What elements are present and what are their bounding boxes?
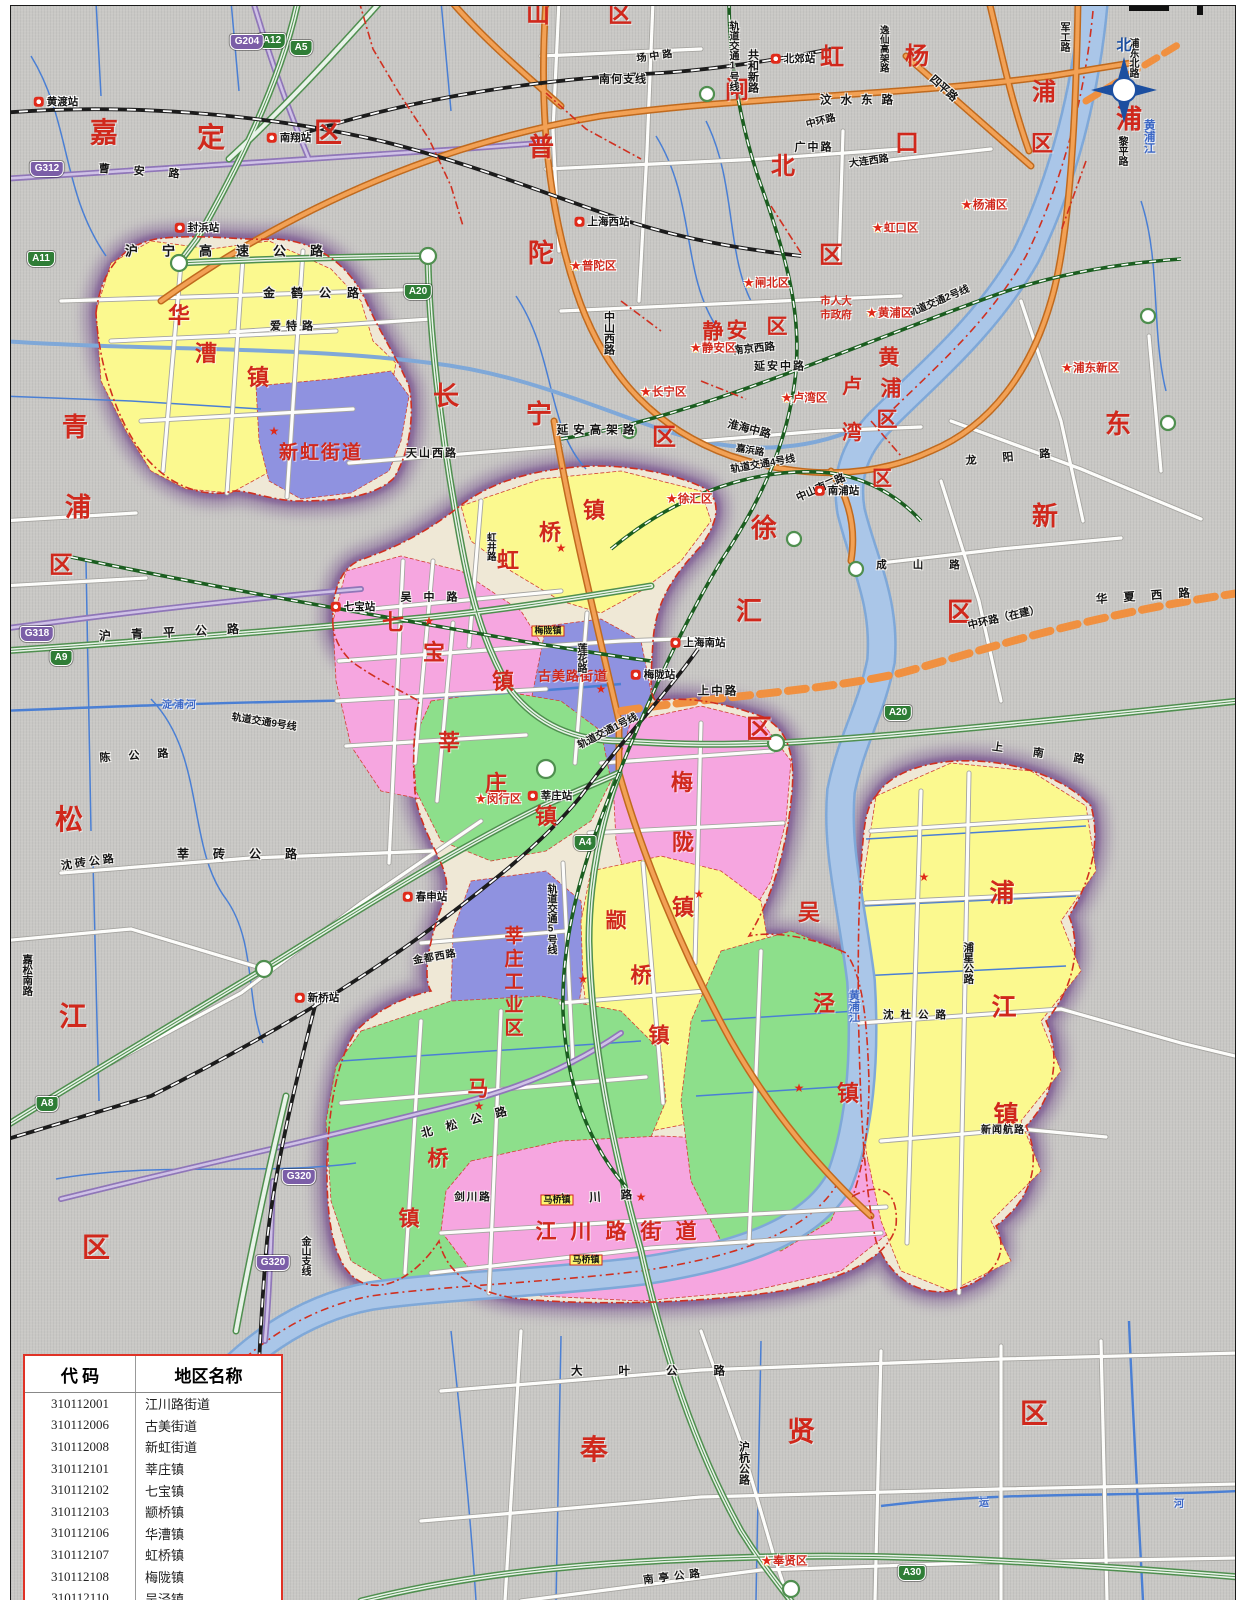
legend-code: 310112006 — [24, 1415, 136, 1437]
legend-row: 310112110吴泾镇 — [24, 1587, 282, 1600]
legend-row: 310112001江川路街道 — [24, 1393, 282, 1415]
legend-code: 310112102 — [24, 1479, 136, 1501]
legend-name: 华漕镇 — [136, 1523, 283, 1545]
legend-code: 310112101 — [24, 1458, 136, 1480]
legend-code: 310112106 — [24, 1523, 136, 1545]
legend-row: 310112108梅陇镇 — [24, 1566, 282, 1588]
legend-name: 江川路街道 — [136, 1393, 283, 1415]
legend-row: 310112101莘庄镇 — [24, 1458, 282, 1480]
legend-row: 310112102七宝镇 — [24, 1479, 282, 1501]
map-frame: 嘉定区山区普陀区闸北虹口杨浦区浦东新区青浦区长宁区静安区黄浦区卢湾区徐汇区松江区… — [10, 5, 1236, 1600]
legend-code: 310112008 — [24, 1436, 136, 1458]
legend-row: 310112008新虹街道 — [24, 1436, 282, 1458]
scanned-map-page: 嘉定区山区普陀区闸北虹口杨浦区浦东新区青浦区长宁区静安区黄浦区卢湾区徐汇区松江区… — [0, 0, 1238, 1600]
legend-code: 310112001 — [24, 1393, 136, 1415]
page-edge-mark — [1129, 6, 1169, 11]
legend-table: 代 码 地区名称 310112001江川路街道 310112006古美街道 31… — [23, 1354, 283, 1600]
legend-code: 310112108 — [24, 1566, 136, 1588]
legend-name: 新虹街道 — [136, 1436, 283, 1458]
legend-header-code: 代 码 — [24, 1355, 136, 1393]
compass-north-label: 北 — [1089, 34, 1159, 55]
legend-row: 310112006古美街道 — [24, 1415, 282, 1437]
legend-name: 七宝镇 — [136, 1479, 283, 1501]
compass-rose: 北 — [1089, 34, 1159, 134]
legend-name: 颛桥镇 — [136, 1501, 283, 1523]
legend-row: 310112103颛桥镇 — [24, 1501, 282, 1523]
legend-name: 古美街道 — [136, 1415, 283, 1437]
legend-code: 310112103 — [24, 1501, 136, 1523]
legend-code: 310112110 — [24, 1587, 136, 1600]
legend-name: 莘庄镇 — [136, 1458, 283, 1480]
compass-star-icon — [1089, 55, 1159, 125]
legend-name: 虹桥镇 — [136, 1544, 283, 1566]
legend-name: 梅陇镇 — [136, 1566, 283, 1588]
legend-name: 吴泾镇 — [136, 1587, 283, 1600]
legend-row: 310112106华漕镇 — [24, 1523, 282, 1545]
legend-code: 310112107 — [24, 1544, 136, 1566]
legend-header-name: 地区名称 — [136, 1355, 283, 1393]
legend-header-row: 代 码 地区名称 — [24, 1355, 282, 1393]
legend-row: 310112107虹桥镇 — [24, 1544, 282, 1566]
page-edge-mark — [1197, 6, 1203, 15]
